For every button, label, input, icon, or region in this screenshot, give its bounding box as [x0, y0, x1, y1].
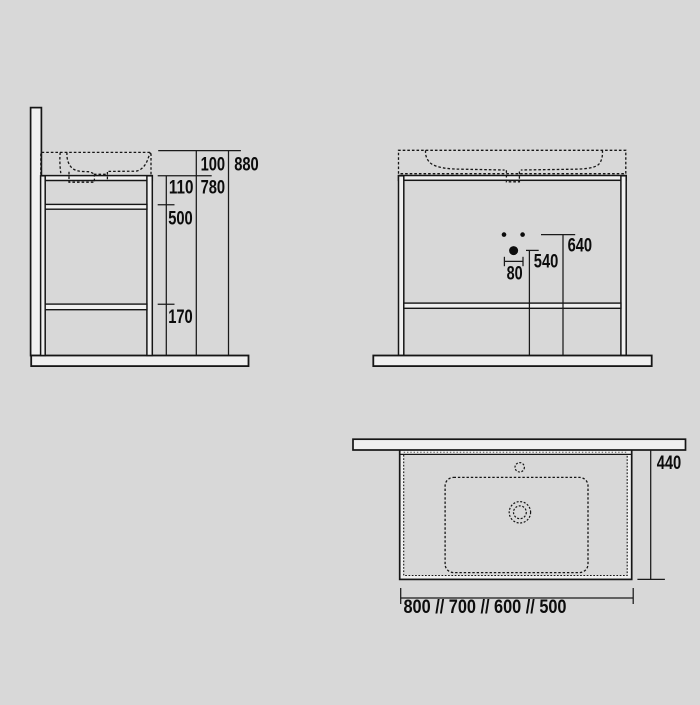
svg-text:880: 880 — [234, 154, 259, 175]
svg-text:640: 640 — [568, 235, 593, 256]
svg-text:110: 110 — [169, 177, 194, 198]
svg-text:100: 100 — [201, 154, 226, 175]
svg-text:500: 500 — [168, 208, 193, 229]
svg-text:170: 170 — [168, 307, 193, 328]
svg-text:540: 540 — [534, 251, 559, 272]
svg-text:780: 780 — [201, 177, 226, 198]
svg-text:80: 80 — [507, 264, 523, 285]
svg-text:800 // 700 // 600 // 500: 800 // 700 // 600 // 500 — [404, 597, 567, 618]
svg-text:440: 440 — [657, 453, 682, 474]
